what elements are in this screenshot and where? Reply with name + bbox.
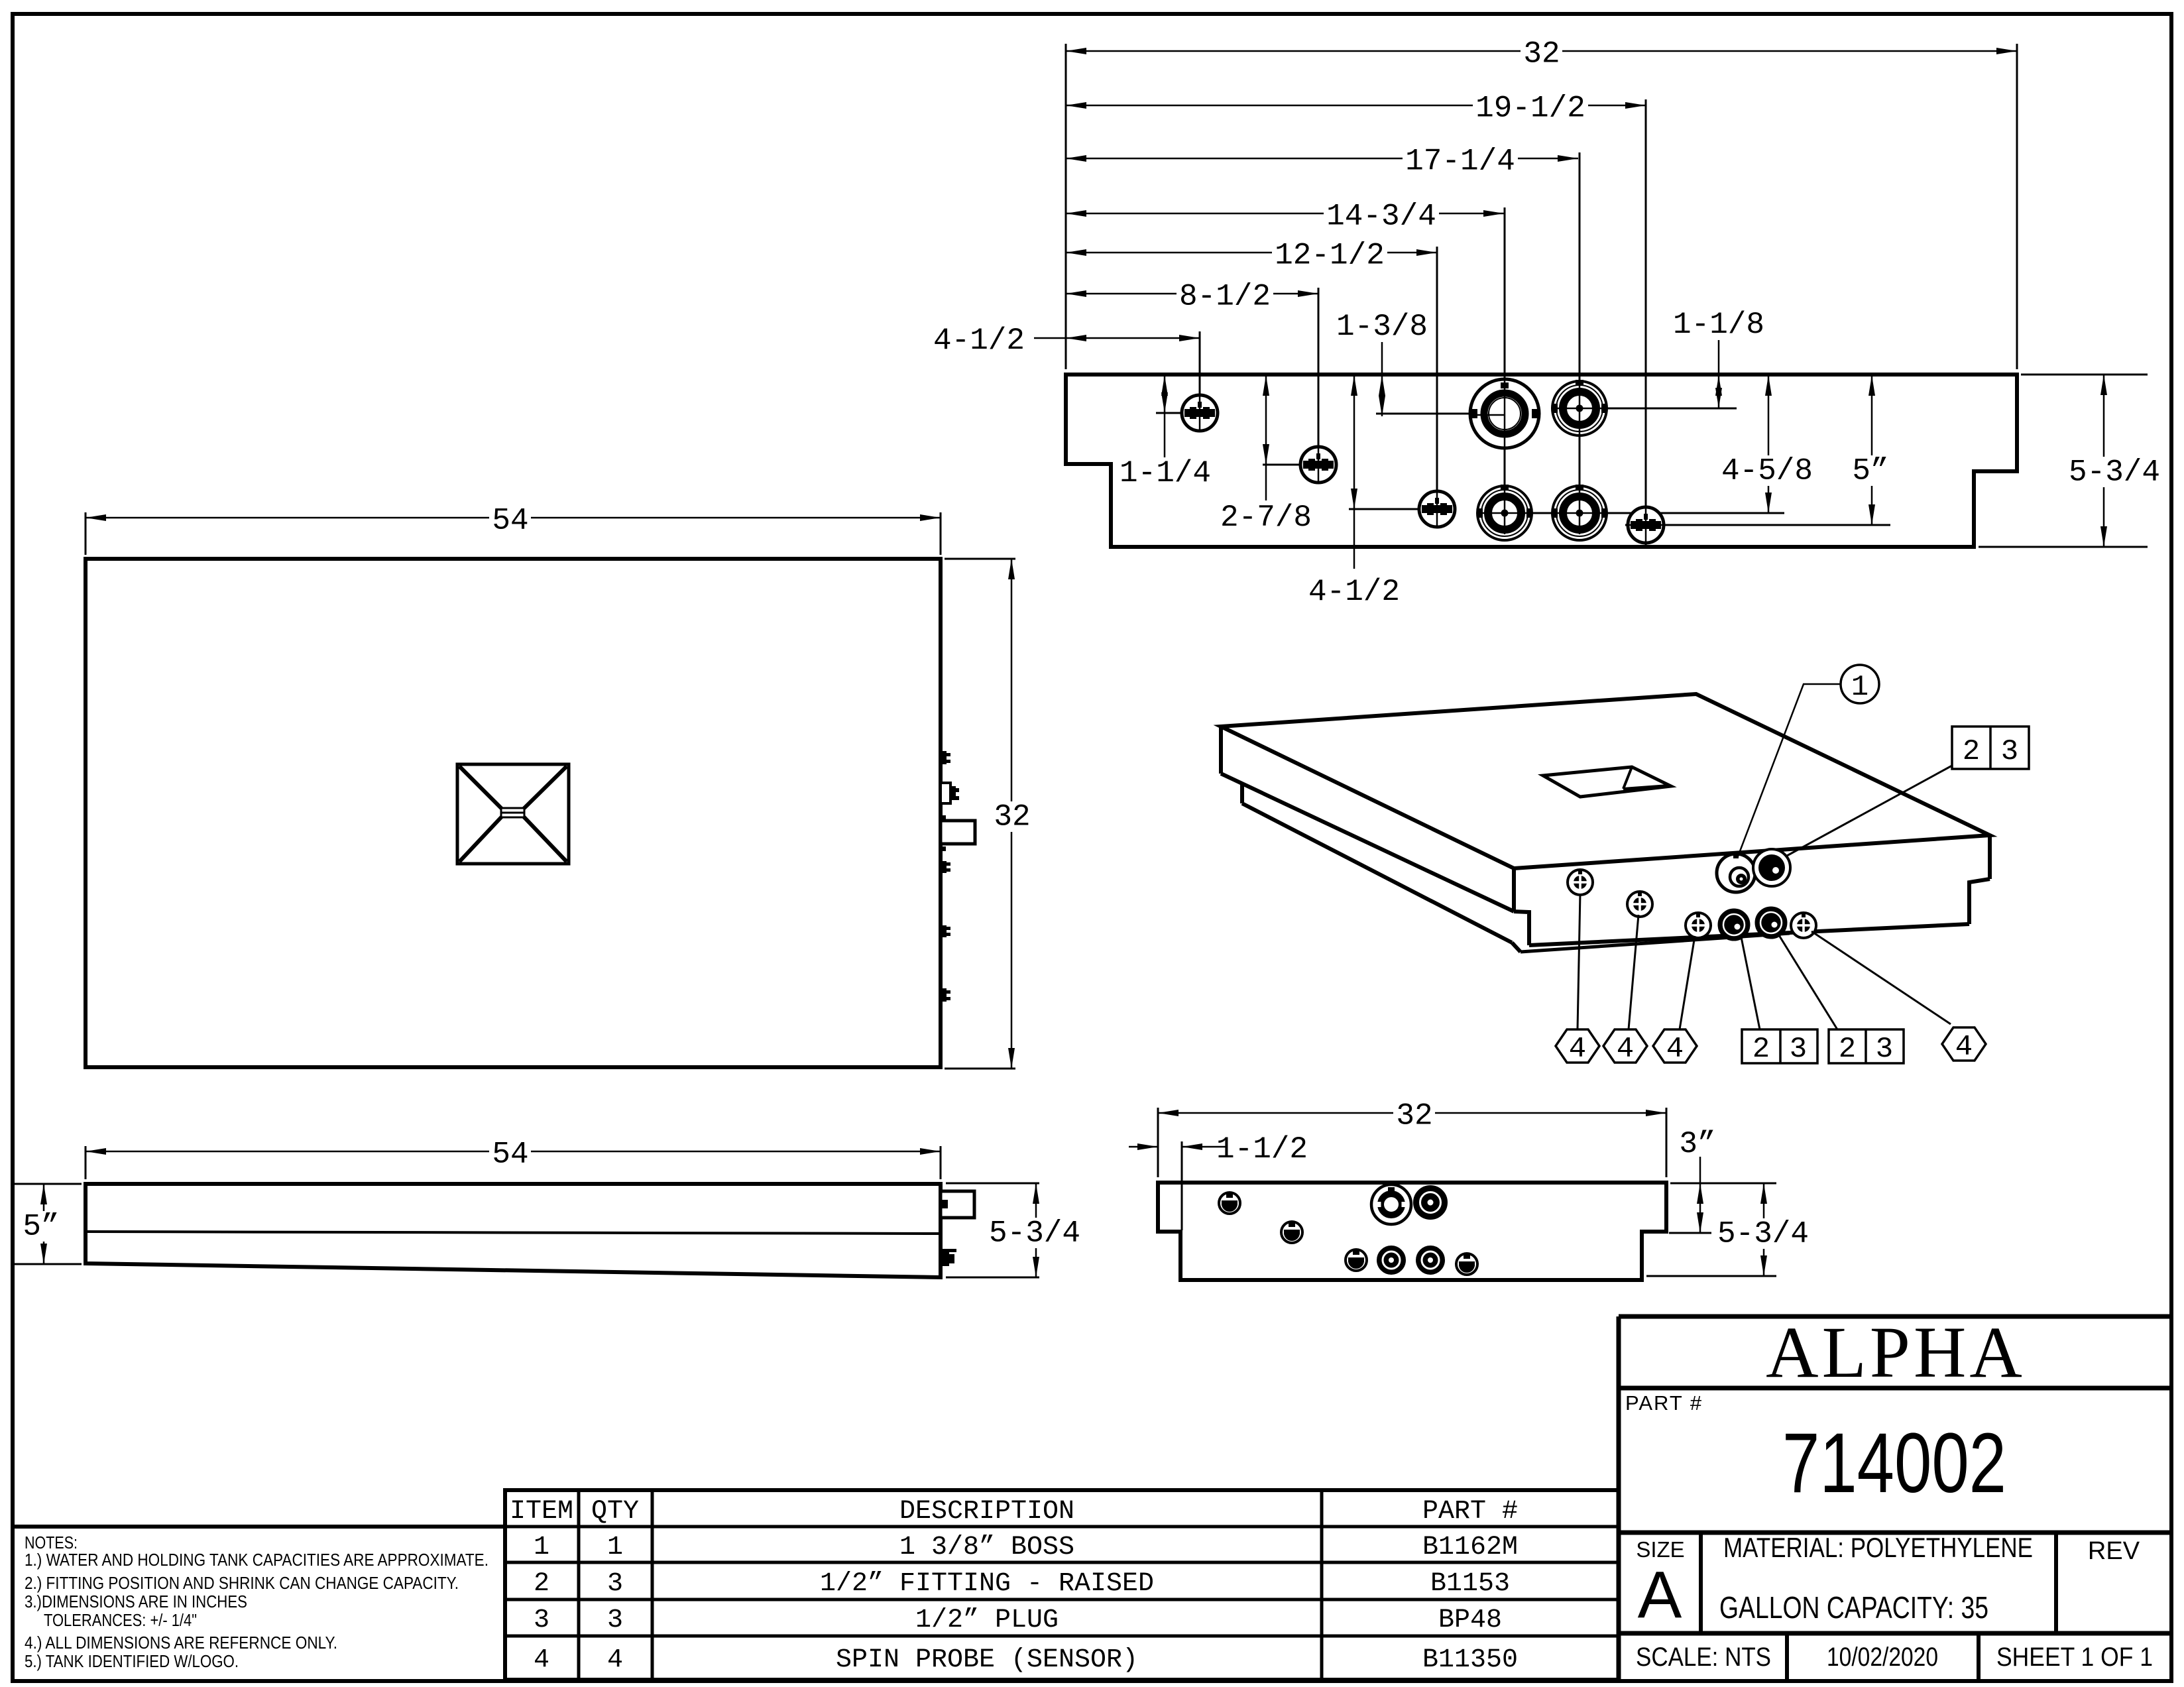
svg-text:54: 54 xyxy=(492,1137,528,1171)
svg-text:3.)DIMENSIONS ARE IN INCHES: 3.)DIMENSIONS ARE IN INCHES xyxy=(25,1593,247,1611)
svg-text:4: 4 xyxy=(1955,1031,1973,1064)
svg-text:32: 32 xyxy=(994,799,1030,834)
svg-text:5-3/4: 5-3/4 xyxy=(1717,1216,1809,1251)
svg-text:3: 3 xyxy=(1790,1033,1807,1066)
svg-text:QTY: QTY xyxy=(591,1497,639,1527)
svg-text:NOTES:: NOTES: xyxy=(25,1534,78,1552)
svg-text:32: 32 xyxy=(1396,1098,1432,1133)
svg-text:17-1/4: 17-1/4 xyxy=(1405,144,1515,178)
svg-text:10/02/2020: 10/02/2020 xyxy=(1827,1643,1938,1672)
svg-text:4-1/2: 4-1/2 xyxy=(1308,575,1400,609)
svg-text:4: 4 xyxy=(534,1645,549,1675)
svg-text:4: 4 xyxy=(1569,1033,1586,1066)
svg-text:5-3/4: 5-3/4 xyxy=(2069,455,2160,489)
svg-text:1-1/4: 1-1/4 xyxy=(1120,456,1211,491)
svg-text:12-1/2: 12-1/2 xyxy=(1275,238,1385,272)
svg-text:SPIN PROBE (SENSOR): SPIN PROBE (SENSOR) xyxy=(836,1645,1138,1675)
svg-text:3: 3 xyxy=(607,1569,623,1599)
svg-text:714002: 714002 xyxy=(1782,1416,2006,1511)
svg-text:DESCRIPTION: DESCRIPTION xyxy=(899,1497,1074,1527)
svg-text:TOLERANCES: +/- 1/4": TOLERANCES: +/- 1/4" xyxy=(44,1611,197,1630)
svg-text:1/2” PLUG: 1/2” PLUG xyxy=(915,1605,1059,1635)
svg-text:3: 3 xyxy=(2001,735,2018,768)
svg-text:PART #: PART # xyxy=(1625,1391,1703,1415)
svg-text:19-1/2: 19-1/2 xyxy=(1475,91,1585,125)
svg-text:BP48: BP48 xyxy=(1438,1605,1502,1635)
svg-text:3: 3 xyxy=(534,1605,549,1635)
svg-text:1.) WATER AND HOLDING TANK CAP: 1.) WATER AND HOLDING TANK CAPACITIES AR… xyxy=(25,1551,489,1570)
svg-text:1 3/8” BOSS: 1 3/8” BOSS xyxy=(899,1533,1074,1562)
svg-text:A: A xyxy=(1638,1558,1682,1632)
svg-text:MATERIAL: POLYETHYLENE: MATERIAL: POLYETHYLENE xyxy=(1723,1532,2033,1563)
svg-text:1-1/2: 1-1/2 xyxy=(1216,1132,1308,1167)
svg-text:1: 1 xyxy=(534,1533,549,1562)
svg-text:SHEET 1 OF 1: SHEET 1 OF 1 xyxy=(1996,1643,2153,1672)
svg-text:54: 54 xyxy=(492,503,528,538)
svg-text:1-3/8: 1-3/8 xyxy=(1336,310,1428,344)
svg-text:2: 2 xyxy=(1753,1033,1770,1066)
svg-text:5-3/4: 5-3/4 xyxy=(989,1216,1080,1250)
svg-text:B1162M: B1162M xyxy=(1422,1533,1518,1562)
svg-text:ITEM: ITEM xyxy=(510,1497,573,1527)
svg-text:PART #: PART # xyxy=(1422,1497,1518,1527)
svg-text:4: 4 xyxy=(1617,1033,1634,1066)
svg-text:5”: 5” xyxy=(23,1209,59,1244)
svg-text:1: 1 xyxy=(607,1533,623,1562)
svg-text:REV: REV xyxy=(2088,1537,2140,1565)
svg-text:2: 2 xyxy=(1839,1033,1856,1066)
svg-text:2-7/8: 2-7/8 xyxy=(1220,500,1312,535)
svg-text:B1153: B1153 xyxy=(1430,1569,1510,1599)
svg-text:14-3/4: 14-3/4 xyxy=(1326,199,1436,233)
svg-text:SCALE: NTS: SCALE: NTS xyxy=(1636,1643,1771,1672)
svg-text:32: 32 xyxy=(1523,36,1560,71)
svg-text:2.) FITTING POSITION AND SHRIN: 2.) FITTING POSITION AND SHRINK CAN CHAN… xyxy=(25,1574,459,1593)
svg-text:2: 2 xyxy=(534,1569,549,1599)
svg-text:1-1/8: 1-1/8 xyxy=(1673,308,1764,342)
svg-text:4: 4 xyxy=(1666,1033,1684,1066)
svg-text:1/2” FITTING - RAISED: 1/2” FITTING - RAISED xyxy=(820,1569,1154,1599)
svg-text:2: 2 xyxy=(1963,735,1980,768)
svg-text:3: 3 xyxy=(1876,1033,1893,1066)
svg-text:4-5/8: 4-5/8 xyxy=(1721,453,1813,488)
svg-text:8-1/2: 8-1/2 xyxy=(1179,279,1271,314)
svg-text:ALPHA: ALPHA xyxy=(1766,1312,2026,1393)
svg-text:3”: 3” xyxy=(1679,1127,1715,1161)
svg-text:5”: 5” xyxy=(1852,453,1888,488)
svg-text:3: 3 xyxy=(607,1605,623,1635)
svg-text:4: 4 xyxy=(607,1645,623,1675)
svg-text:1: 1 xyxy=(1851,671,1868,704)
svg-text:5.) TANK IDENTIFIED W/LOGO.: 5.) TANK IDENTIFIED W/LOGO. xyxy=(25,1653,239,1671)
svg-text:4-1/2: 4-1/2 xyxy=(933,323,1025,358)
svg-text:4.) ALL DIMENSIONS ARE REFERNC: 4.) ALL DIMENSIONS ARE REFERNCE ONLY. xyxy=(25,1634,337,1653)
svg-text:GALLON CAPACITY: 35: GALLON CAPACITY: 35 xyxy=(1719,1590,1988,1625)
svg-text:B11350: B11350 xyxy=(1422,1645,1518,1675)
